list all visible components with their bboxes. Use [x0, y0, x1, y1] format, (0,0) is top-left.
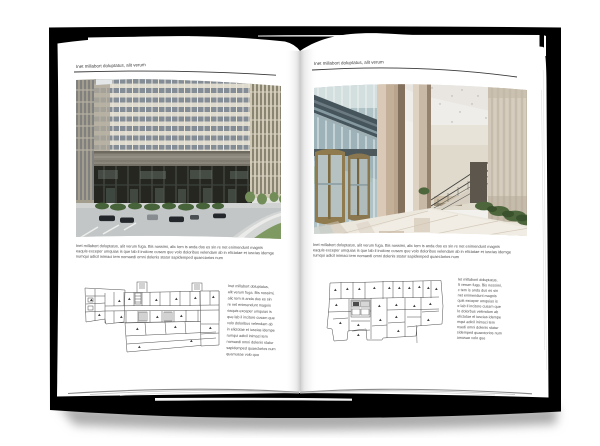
svg-text:quis exceper umquias is: quis exceper umquias is — [458, 299, 498, 304]
svg-text:lo dolorbus velendam ab: lo dolorbus velendam ab — [457, 309, 498, 314]
svg-text:quamusae volo quo: quamusae volo quo — [226, 352, 259, 357]
svg-text:Iet millabont doluptatus,: Iet millabont doluptatus, — [458, 278, 498, 283]
svg-text:amusae volo que: amusae volo que — [457, 336, 486, 341]
svg-text:c tem is anda dus es sin: c tem is anda dus es sin — [458, 288, 498, 293]
svg-text:mqui adicil inimaci tem: mqui adicil inimaci tem — [457, 320, 495, 325]
svg-text:net enimendunt magnis: net enimendunt magnis — [458, 293, 497, 298]
